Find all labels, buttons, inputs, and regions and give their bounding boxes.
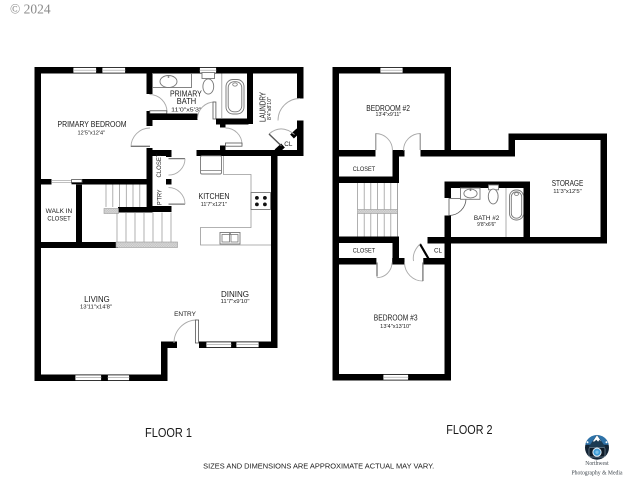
svg-text:13'4"x13'10": 13'4"x13'10" (380, 324, 411, 330)
svg-text:11'0"x5'3": 11'0"x5'3" (171, 107, 201, 113)
svg-text:CLOSET: CLOSET (353, 166, 376, 173)
svg-text:Photography & Media: Photography & Media (572, 470, 623, 477)
svg-text:LAUNDRY: LAUNDRY (258, 92, 268, 122)
svg-text:13'11"x14'8": 13'11"x14'8" (80, 304, 112, 310)
svg-text:CL: CL (284, 141, 293, 148)
svg-text:© 2024: © 2024 (10, 2, 51, 17)
svg-text:CLOSET: CLOSET (353, 247, 376, 254)
svg-text:PRIMARY BEDROOM: PRIMARY BEDROOM (58, 119, 127, 129)
svg-text:11'7"x12'1": 11'7"x12'1" (201, 202, 227, 208)
svg-text:SIZES AND DIMENSIONS ARE APPRO: SIZES AND DIMENSIONS ARE APPROXIMATE ACT… (203, 461, 434, 470)
svg-text:KITCHEN: KITCHEN (199, 191, 230, 201)
svg-text:LIVING: LIVING (84, 294, 110, 304)
svg-text:CL: CL (434, 248, 443, 255)
svg-text:ENTRY: ENTRY (174, 311, 197, 318)
svg-text:FLOOR 2: FLOOR 2 (446, 422, 492, 437)
svg-text:Northwest: Northwest (585, 461, 609, 467)
svg-text:11'7"x9'10": 11'7"x9'10" (221, 299, 250, 305)
svg-text:BEDROOM #3: BEDROOM #3 (374, 312, 418, 322)
svg-text:11'3"x12'5": 11'3"x12'5" (553, 189, 581, 195)
svg-text:13'4"x9'11": 13'4"x9'11" (376, 112, 402, 118)
svg-text:FLOOR 1: FLOOR 1 (145, 425, 192, 440)
svg-text:DINING: DINING (221, 289, 249, 299)
svg-text:CLOSET: CLOSET (47, 215, 70, 222)
svg-text:9'8"x6'6": 9'8"x6'6" (477, 222, 496, 228)
svg-text:P'TRY: P'TRY (157, 189, 164, 205)
svg-text:12'5"x12'4": 12'5"x12'4" (78, 130, 106, 136)
svg-text:CLOSET: CLOSET (156, 153, 163, 177)
svg-text:BATH: BATH (177, 96, 196, 106)
svg-text:STORAGE: STORAGE (552, 178, 584, 188)
svg-text:WALK IN: WALK IN (46, 208, 73, 215)
svg-text:8'4"x8'10": 8'4"x8'10" (267, 97, 273, 120)
